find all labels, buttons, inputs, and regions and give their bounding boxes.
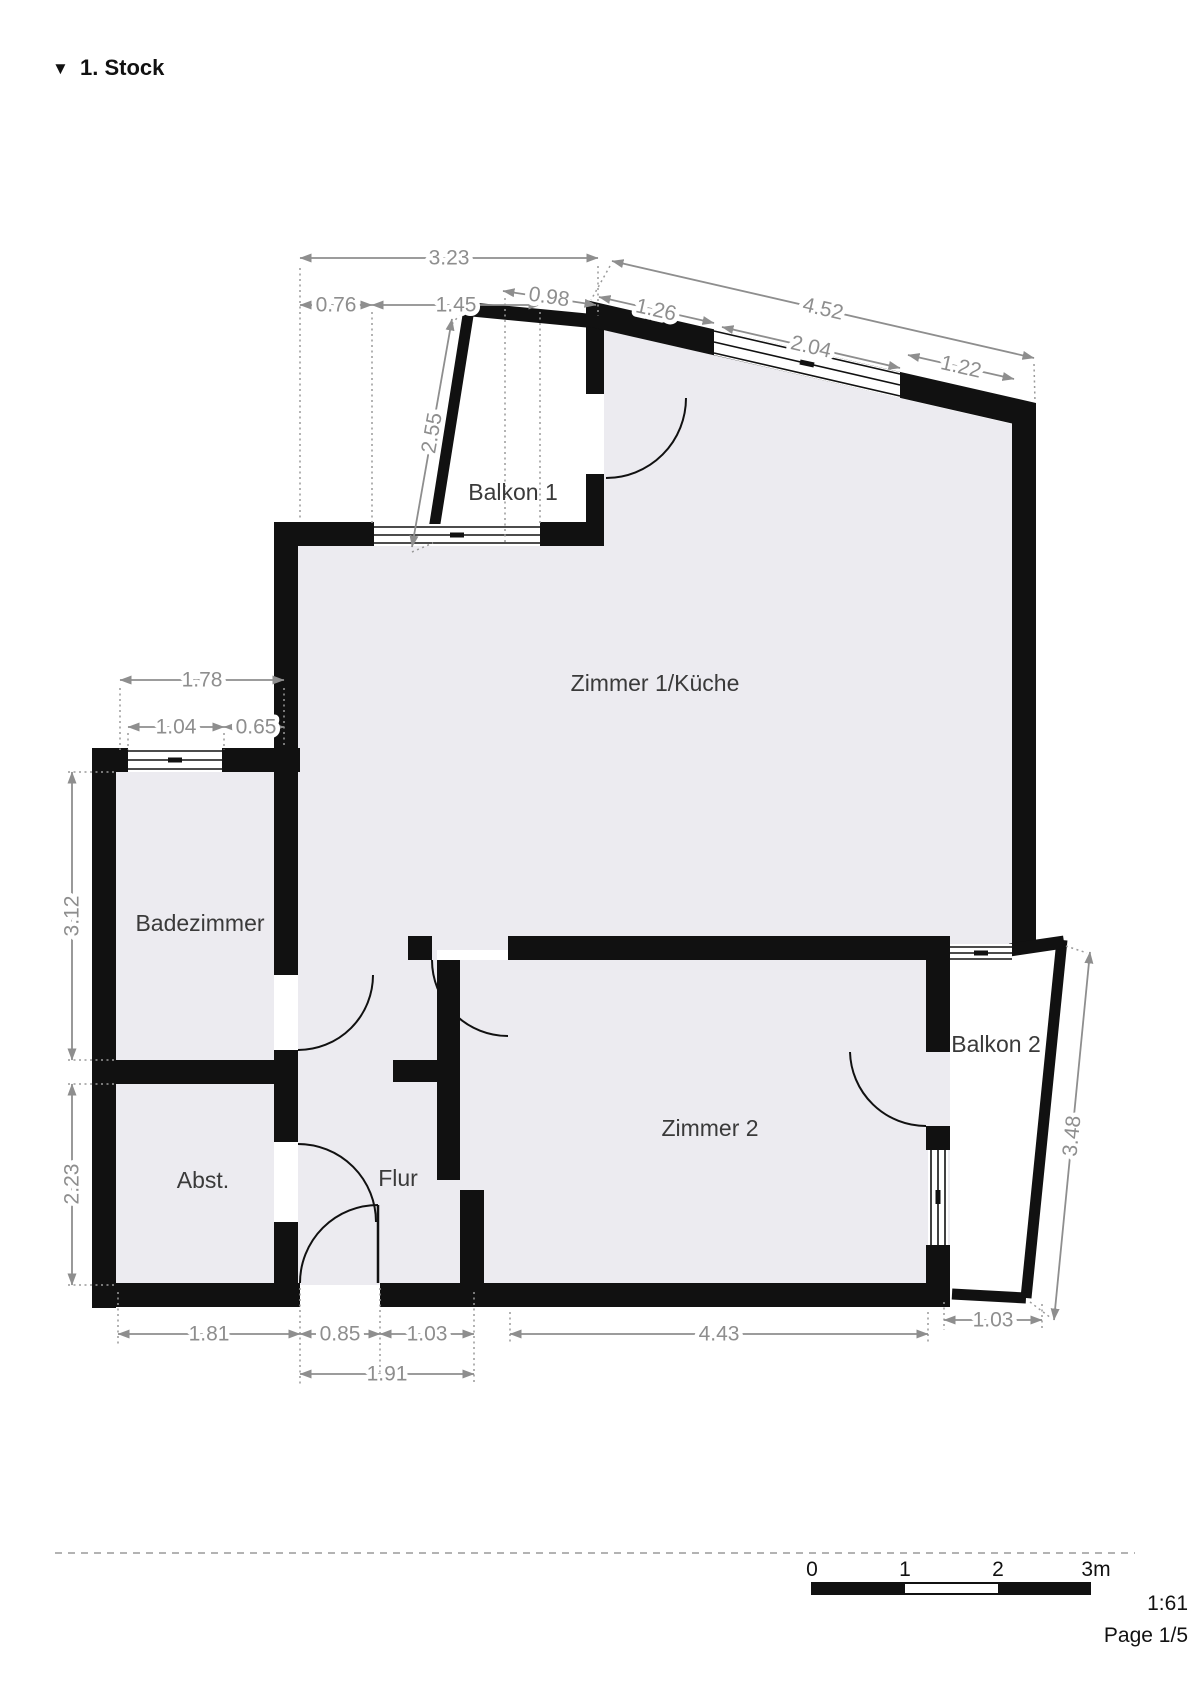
window-symbol (928, 1150, 948, 1245)
room-label-zimmer2: Zimmer 2 (661, 1115, 758, 1141)
wall (92, 1060, 274, 1084)
room-label-balkon1: Balkon 1 (468, 479, 558, 505)
dimension-label: 1.91 (367, 1363, 408, 1386)
dimension-label: 0.98 (527, 283, 571, 312)
wall (92, 748, 116, 1308)
room-label-balkon2: Balkon 2 (951, 1031, 1041, 1057)
window-symbol (128, 748, 222, 772)
dimension-label: 4.43 (699, 1323, 740, 1346)
dimension-label: 1.04 (156, 716, 197, 739)
wall (92, 748, 128, 772)
wall (926, 1126, 950, 1150)
dimension-label: 3.12 (61, 896, 84, 937)
dimension-label: 3.48 (1058, 1114, 1085, 1157)
page-title: 1. Stock (80, 55, 165, 80)
dimension-label: 1.03 (973, 1309, 1014, 1332)
scale-tick-label: 2 (992, 1558, 1004, 1581)
wall (393, 1060, 437, 1082)
dimension-label: 0.76 (316, 294, 357, 317)
dimension-label: 1.03 (407, 1323, 448, 1346)
wall (1012, 415, 1036, 944)
floor-plan: ▼ 1. Stock (0, 0, 1190, 1683)
wall (274, 1050, 298, 1142)
dimension-label: 1.45 (436, 294, 477, 317)
wall (92, 1283, 300, 1307)
dimension-label: 4.52 (801, 293, 846, 325)
wall (508, 936, 950, 960)
scale-tick-label: 0 (806, 1558, 818, 1581)
dimension-label: 2.23 (61, 1164, 84, 1205)
floor-plan-page: ▼ 1. Stock (0, 0, 1190, 1683)
dimension-label: 1.22 (939, 351, 984, 382)
window-symbol (374, 524, 540, 546)
page-indicator: Page 1/5 (1104, 1624, 1188, 1647)
balkon2-bottom-wall (952, 1294, 1026, 1298)
dimension-label: 1.81 (189, 1323, 230, 1346)
scale-tick-label: 3m (1081, 1558, 1110, 1581)
wall (408, 936, 432, 960)
scale-tick-label: 1 (899, 1558, 911, 1581)
wall (274, 522, 298, 975)
dimension-label: 0.85 (320, 1323, 361, 1346)
room-label-zimmer1-kueche: Zimmer 1/Küche (571, 670, 740, 696)
dimension-label: 3.23 (429, 247, 470, 270)
wall (460, 1190, 484, 1307)
wall (586, 474, 604, 546)
balkon2-top-wall (1010, 942, 1064, 950)
dimension-label: 0.65 (236, 716, 277, 739)
dimension-label: 1.78 (182, 669, 223, 692)
room-label-badezimmer: Badezimmer (135, 910, 264, 936)
scale-bar: 0 1 2 3m (806, 1558, 1110, 1594)
window-symbol (950, 944, 1012, 962)
wall (437, 960, 460, 1180)
wall (274, 522, 374, 546)
scale-ratio: 1:61 (1147, 1592, 1188, 1615)
room-label-abst: Abst. (177, 1167, 229, 1193)
collapse-triangle-icon[interactable]: ▼ (52, 59, 69, 78)
wall (274, 1222, 298, 1285)
room-label-flur: Flur (378, 1165, 418, 1191)
wall (540, 522, 586, 546)
